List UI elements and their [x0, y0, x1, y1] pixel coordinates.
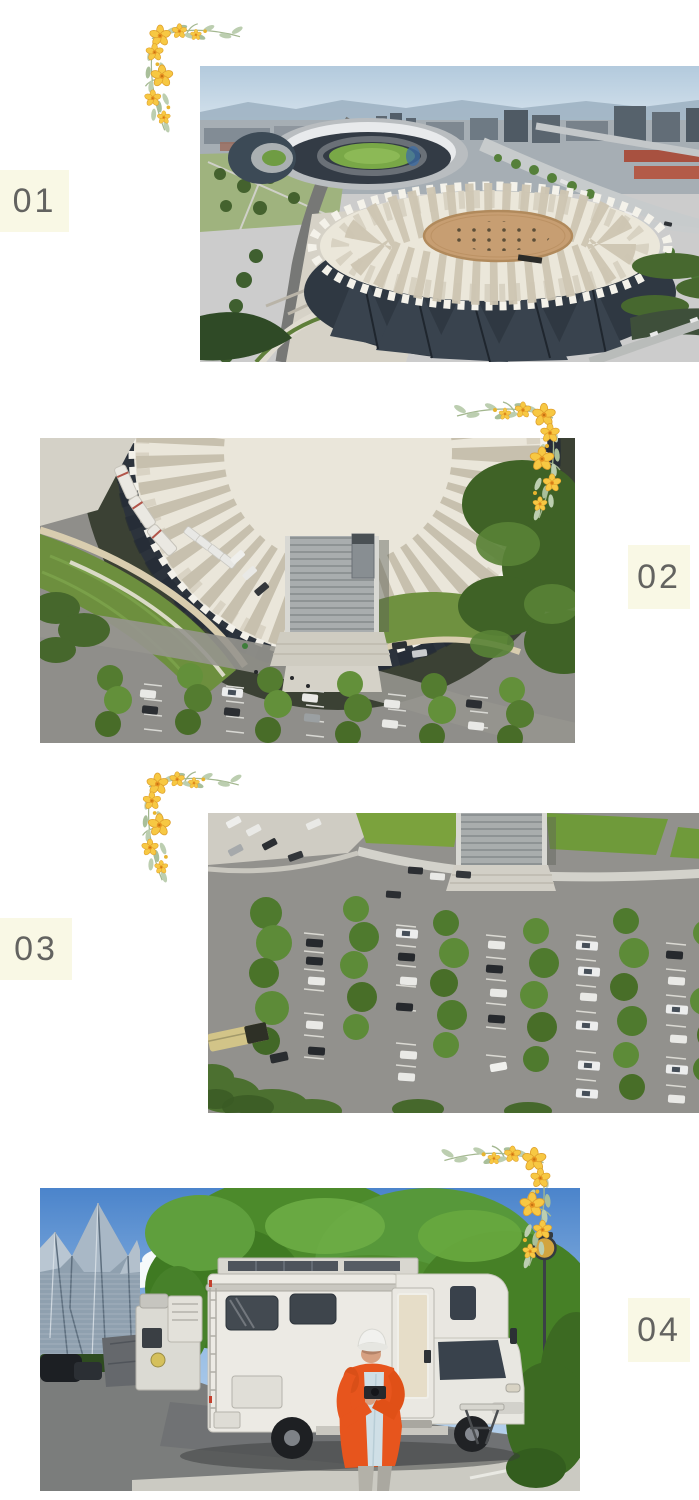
entrance-stairs	[285, 534, 389, 632]
walkway	[270, 632, 392, 666]
mirror	[510, 1328, 517, 1344]
photo-3-scene	[208, 813, 699, 1113]
photo-3-aerial-parking	[208, 813, 699, 1113]
photo-1-scene	[200, 66, 699, 362]
photo-2-aerial-arena-topdown	[40, 438, 575, 743]
lawn	[356, 813, 460, 847]
photo-4-rv-campsite	[40, 1188, 580, 1491]
c-shaped-hall	[228, 132, 296, 184]
photo-1-aerial-stadium-arena	[200, 66, 699, 362]
cab-window	[438, 1340, 506, 1380]
awning	[206, 1284, 410, 1291]
lawn	[546, 813, 668, 855]
entrance-stairs-topdown	[446, 813, 556, 891]
photo-2-number: 02	[637, 558, 681, 597]
photo-2-number-badge: 02	[628, 545, 690, 609]
collage-page: 01 02 03 04	[0, 0, 699, 1500]
photo-3-number: 03	[14, 930, 58, 969]
photo-4-number-badge: 04	[628, 1298, 690, 1362]
round-arena	[304, 186, 676, 362]
solar-panel	[228, 1261, 338, 1271]
photo-4-number: 04	[637, 1311, 681, 1350]
stadium	[268, 118, 468, 190]
pants	[358, 1466, 374, 1491]
photo-1-number: 01	[13, 182, 57, 221]
photo-4-scene	[40, 1188, 580, 1491]
trash-bin	[242, 643, 248, 649]
side-window	[290, 1294, 336, 1324]
photo-2-scene	[40, 438, 575, 743]
storage-hatch	[232, 1376, 282, 1408]
photo-1-number-badge: 01	[0, 170, 69, 232]
photo-3-number-badge: 03	[0, 918, 72, 980]
